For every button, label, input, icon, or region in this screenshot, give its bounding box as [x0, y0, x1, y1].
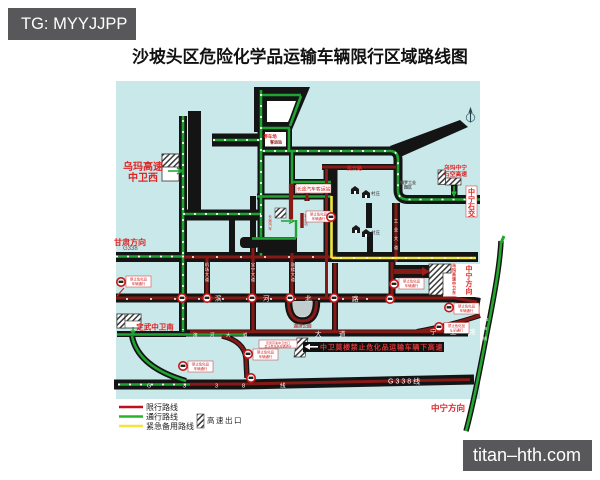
svg-text:中: 中: [466, 264, 473, 273]
svg-text:石空高速: 石空高速: [443, 170, 467, 178]
svg-text:卫: 卫: [450, 328, 457, 336]
svg-text:紧急备用路线: 紧急备用路线: [146, 421, 194, 431]
svg-text:中: 中: [468, 187, 475, 196]
svg-text:沙坡头区危险化学品运输车辆限行区域路线图: 沙坡头区危险化学品运输车辆限行区域路线图: [132, 47, 468, 67]
svg-text:G: G: [484, 299, 487, 304]
svg-text:村庄: 村庄: [371, 190, 380, 197]
svg-text:交: 交: [468, 209, 476, 218]
svg-text:大: 大: [226, 332, 231, 339]
svg-text:向: 向: [466, 287, 473, 296]
svg-text:宁: 宁: [468, 195, 475, 204]
svg-text:G: G: [147, 384, 151, 390]
svg-text:路: 路: [352, 294, 359, 303]
svg-text:园区: 园区: [404, 184, 412, 190]
svg-text:河: 河: [210, 332, 215, 338]
svg-text:中卫莫楼禁止危化品运输车辆下高速: 中卫莫楼禁止危化品运输车辆下高速: [320, 343, 443, 352]
svg-text:湖滨公园: 湖滨公园: [294, 323, 312, 330]
svg-text:大: 大: [315, 329, 322, 338]
svg-text:道: 道: [339, 329, 346, 338]
svg-text:村庄: 村庄: [371, 229, 380, 236]
svg-text:3: 3: [215, 384, 218, 390]
svg-text:车: 车: [268, 226, 272, 231]
svg-text:限行路线: 限行路线: [146, 402, 178, 412]
svg-text:民云路: 民云路: [347, 165, 363, 172]
svg-text:北: 北: [305, 295, 312, 303]
svg-text:路: 路: [469, 327, 476, 336]
svg-text:titan–hth.com: titan–hth.com: [473, 445, 581, 465]
svg-text:宁: 宁: [466, 272, 473, 281]
svg-text:宁: 宁: [430, 327, 437, 336]
svg-text:乌玛中宁: 乌玛中宁: [444, 164, 467, 172]
svg-text:石: 石: [467, 203, 475, 211]
svg-text:滨: 滨: [215, 294, 222, 303]
svg-text:G338线: G338线: [388, 377, 422, 386]
svg-text:中卫西: 中卫西: [128, 171, 158, 184]
svg-text:TG: MYYJJPP: TG: MYYJJPP: [21, 15, 127, 33]
svg-text:方: 方: [466, 279, 473, 288]
svg-text:通行路线: 通行路线: [146, 412, 178, 422]
svg-text:大: 大: [394, 235, 398, 242]
svg-text:线: 线: [280, 382, 286, 390]
svg-text:禁止危化品车辆通行: 禁止危化品车辆通行: [264, 343, 291, 348]
svg-text:河: 河: [263, 295, 270, 303]
svg-text:3: 3: [183, 384, 186, 390]
svg-text:客运站: 客运站: [269, 139, 282, 145]
svg-text:定武中卫南: 定武中卫南: [136, 322, 174, 332]
svg-text:东: 东: [452, 289, 456, 295]
svg-text:高速出口: 高速出口: [207, 415, 243, 425]
svg-text:乌玛高速: 乌玛高速: [123, 160, 163, 173]
svg-text:工: 工: [394, 218, 398, 223]
svg-text:8: 8: [242, 384, 245, 390]
svg-text:长途汽车客运站: 长途汽车客运站: [297, 186, 331, 193]
svg-text:滨: 滨: [193, 332, 198, 339]
svg-text:道: 道: [243, 332, 248, 339]
svg-text:业: 业: [394, 226, 398, 232]
svg-text:中宁方向: 中宁方向: [431, 403, 465, 413]
svg-text:G338: G338: [123, 246, 138, 252]
